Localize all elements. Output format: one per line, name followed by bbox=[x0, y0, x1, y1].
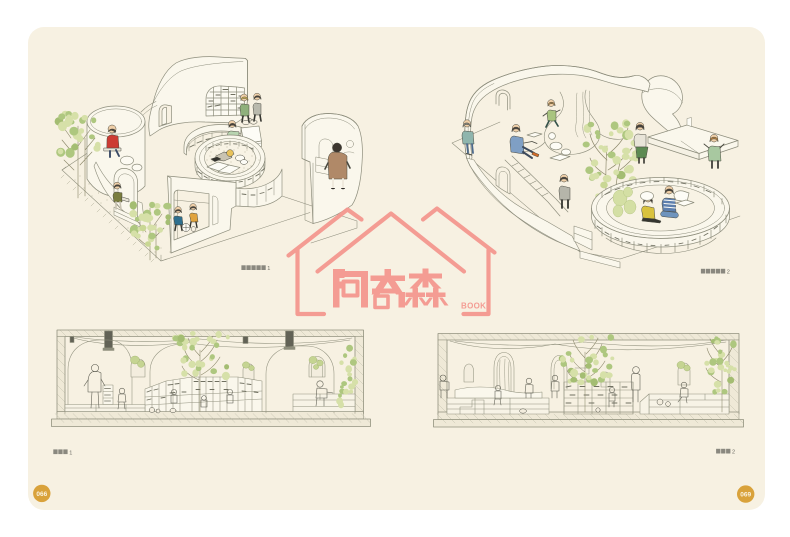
svg-text:066: 066 bbox=[36, 491, 47, 498]
svg-text:1: 1 bbox=[267, 266, 270, 272]
svg-text:2: 2 bbox=[732, 450, 735, 456]
svg-text:1: 1 bbox=[69, 450, 72, 456]
svg-text:BOOK: BOOK bbox=[461, 302, 486, 311]
svg-text:069: 069 bbox=[740, 492, 751, 499]
svg-text:2: 2 bbox=[727, 270, 730, 276]
